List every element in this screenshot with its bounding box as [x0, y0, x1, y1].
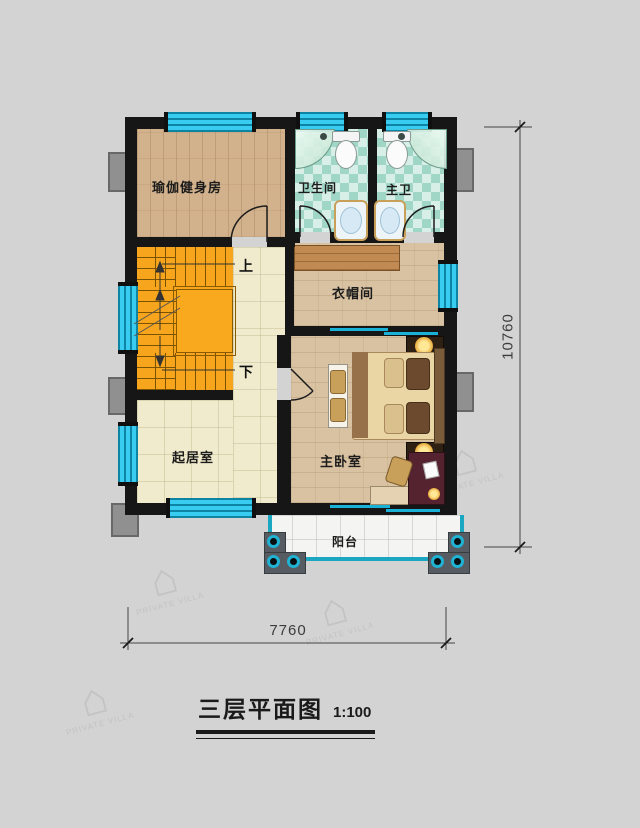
- room-label-master-bedroom: 主卧室: [320, 451, 362, 470]
- dimension-bottom: 7760: [258, 622, 318, 639]
- room-label-balcony: 阳台: [332, 533, 358, 550]
- floor-plan-canvas: ⌂PRIVATE VILLA ⌂PRIVATE VILLA ⌂PRIVATE V…: [0, 0, 640, 828]
- title-scale: 1:100: [333, 704, 371, 721]
- dimension-right: 10760: [500, 307, 517, 367]
- stair-up-label: 上: [239, 256, 253, 276]
- dimension-lines: [120, 120, 532, 650]
- room-label-cloakroom: 衣帽间: [332, 283, 374, 302]
- stair-direction-marks: [134, 262, 235, 370]
- title-block: 三层平面图1:100: [196, 690, 446, 734]
- room-label-master-bath: 主卫: [386, 181, 412, 198]
- room-label-bathroom: 卫生间: [298, 179, 337, 196]
- door-arcs: [231, 206, 434, 400]
- stair-down-label: 下: [239, 362, 253, 382]
- page-title: 三层平面图: [198, 696, 323, 722]
- room-label-yoga: 瑜伽健身房: [152, 177, 222, 196]
- room-label-living: 起居室: [172, 447, 214, 466]
